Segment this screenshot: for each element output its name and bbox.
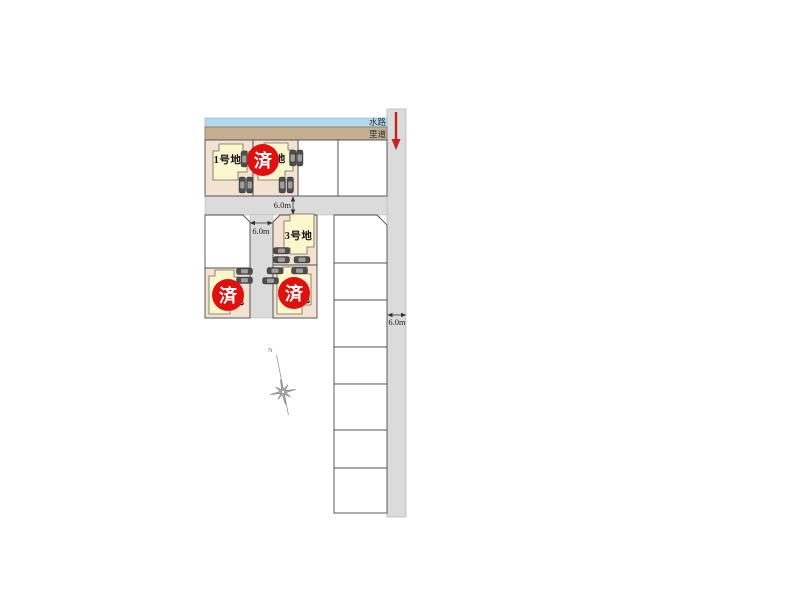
vacant-lot xyxy=(334,263,387,300)
compass-center xyxy=(282,391,285,394)
waterway-label: 水路 xyxy=(362,118,386,127)
vacant-lot xyxy=(205,215,250,268)
front-road xyxy=(205,196,387,215)
lot-3-label: 3号地 xyxy=(276,232,321,243)
east-road xyxy=(387,109,406,517)
east-road-width-label: 6.0m xyxy=(382,318,412,327)
car-icon xyxy=(239,177,246,193)
car-icon xyxy=(290,150,297,166)
site-plan: 水路 里道 1号地 2号地 3号地 地 地 6.0m 6.0m 6.0m N 済… xyxy=(0,0,800,600)
car-icon xyxy=(267,268,283,275)
car-icon xyxy=(297,150,304,166)
vacant-lot xyxy=(334,384,387,430)
car-icon xyxy=(287,177,294,193)
car-icon xyxy=(237,268,253,275)
sold-stamp-lot-4: 済 xyxy=(278,277,310,309)
center-road-width-label: 6.0m xyxy=(246,227,276,236)
vacant-lot xyxy=(334,215,387,263)
site-plan-drawing xyxy=(0,0,800,600)
compass xyxy=(268,355,298,415)
car-icon xyxy=(247,177,254,193)
front-road-width-label: 6.0m xyxy=(261,201,291,210)
vacant-lot xyxy=(334,300,387,347)
sold-stamp-lot-2: 済 xyxy=(247,144,279,176)
vacant-lot xyxy=(334,347,387,384)
rido-label: 里道 xyxy=(362,130,386,139)
car-icon xyxy=(274,257,290,264)
vacant-lot xyxy=(298,140,338,196)
waterway-strip xyxy=(205,118,387,127)
vacant-lot xyxy=(334,430,387,468)
car-icon xyxy=(292,268,308,275)
car-icon xyxy=(263,278,279,285)
car-icon xyxy=(294,257,310,264)
vacant-lot xyxy=(334,468,387,513)
sold-stamp-lot-5: 済 xyxy=(212,279,244,311)
car-icon xyxy=(274,248,290,255)
compass-north-label: N xyxy=(268,348,273,355)
vacant-lot xyxy=(338,140,387,196)
lot-1-label: 1号地 xyxy=(205,156,250,167)
rido-strip xyxy=(205,127,387,140)
car-icon xyxy=(279,177,286,193)
